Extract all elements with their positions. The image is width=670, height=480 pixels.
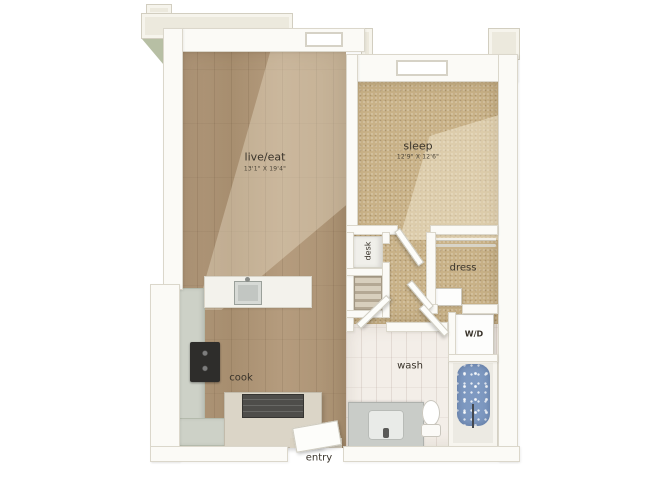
wall-wd-south: [448, 354, 498, 362]
wall-right: [498, 54, 518, 462]
room-label-live-eat: live/eat: [245, 151, 286, 164]
cooktop-icon: [242, 394, 304, 418]
kitchen-sink-icon: [234, 281, 262, 305]
room-label-wd: W/D: [465, 330, 483, 339]
toilet-bowl-icon: [422, 400, 440, 426]
window-sleep-icon: [396, 60, 448, 76]
room-label-dress: dress: [450, 263, 477, 274]
wall-left-living: [163, 28, 183, 290]
wall-bottom-left: [150, 446, 288, 462]
wall-sleep-south-b: [430, 225, 498, 235]
vanity-faucet-icon: [383, 428, 389, 438]
wall-left-kitchen: [150, 284, 180, 462]
room-dims-sleep: 12'9" X 12'6": [397, 154, 439, 161]
wall-dress-south-b: [462, 304, 498, 314]
wall-wd-west: [448, 312, 456, 360]
dress-shelf: [434, 238, 496, 240]
window-living-icon: [305, 32, 343, 47]
room-label-sleep: sleep: [403, 140, 432, 153]
tub-faucet-icon: [472, 404, 474, 428]
kitchen-faucet-icon: [245, 277, 250, 282]
wall-living-sleep-divider: [346, 54, 358, 232]
dress-rod-icon: [434, 244, 496, 247]
toilet-tank-icon: [421, 424, 441, 437]
room-label-entry: entry: [306, 453, 332, 464]
room-label-desk: desk: [364, 242, 373, 261]
wall-desk-stub: [382, 232, 390, 244]
stove-icon: [190, 342, 220, 382]
room-label-wash: wash: [397, 361, 423, 372]
room-label-cook: cook: [229, 373, 253, 384]
room-dims-live-eat: 13'1" X 19'4": [244, 166, 286, 173]
wall-closet-east: [382, 262, 390, 318]
floor-plan: live/eat 13'1" X 19'4" sleep 12'9" X 12'…: [0, 0, 670, 480]
wall-bottom-right: [343, 446, 520, 462]
